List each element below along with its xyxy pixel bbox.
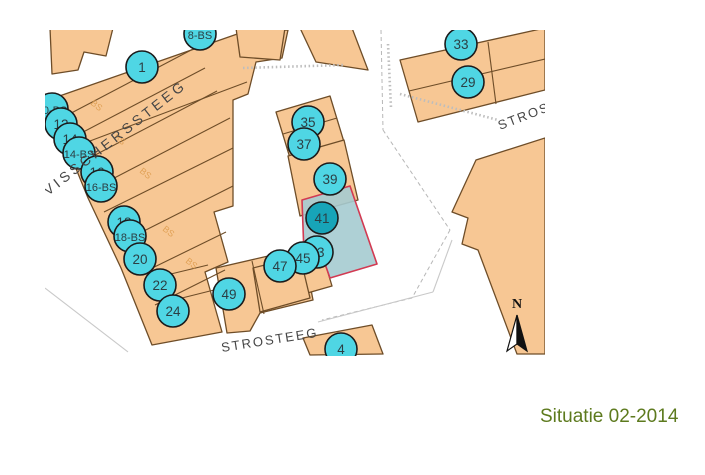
svg-text:18-BS: 18-BS	[115, 232, 146, 244]
building-block-top-1	[236, 28, 285, 60]
address-marker: 16-BS	[85, 170, 117, 202]
svg-text:49: 49	[221, 287, 236, 302]
address-marker: 29	[452, 66, 484, 98]
building-block-southeast	[452, 138, 545, 354]
svg-text:N: N	[512, 297, 522, 312]
address-marker: 4	[325, 333, 357, 365]
svg-text:20: 20	[132, 252, 147, 267]
address-marker: 20	[124, 243, 156, 275]
svg-text:39: 39	[322, 172, 337, 187]
address-marker: 49	[213, 278, 245, 310]
svg-text:8-BS: 8-BS	[188, 30, 212, 42]
selected-address-marker: 41	[306, 202, 338, 234]
svg-text:45: 45	[295, 251, 310, 266]
address-marker: 37	[288, 128, 320, 160]
svg-text:29: 29	[460, 75, 475, 90]
map-canvas: BSBSBSBSBS 18-BS10-BS121414-BS1616-BS181…	[0, 0, 705, 475]
svg-text:1: 1	[138, 60, 146, 75]
svg-text:41: 41	[314, 211, 329, 226]
address-marker: 8-BS	[184, 18, 216, 50]
building-block	[50, 28, 113, 74]
svg-text:24: 24	[165, 304, 181, 319]
situation-date-label: Situatie 02-2014	[540, 406, 678, 428]
svg-text:37: 37	[296, 137, 311, 152]
address-marker: 24	[157, 295, 189, 327]
address-marker: 47	[264, 250, 296, 282]
svg-text:33: 33	[453, 37, 468, 52]
address-marker: 33	[445, 28, 477, 60]
svg-text:16-BS: 16-BS	[86, 182, 117, 194]
svg-text:4: 4	[337, 342, 345, 357]
svg-text:22: 22	[152, 278, 167, 293]
svg-text:47: 47	[272, 259, 287, 274]
address-marker: 1	[126, 51, 158, 83]
address-marker: 39	[314, 163, 346, 195]
building-block-top-2	[300, 28, 368, 70]
